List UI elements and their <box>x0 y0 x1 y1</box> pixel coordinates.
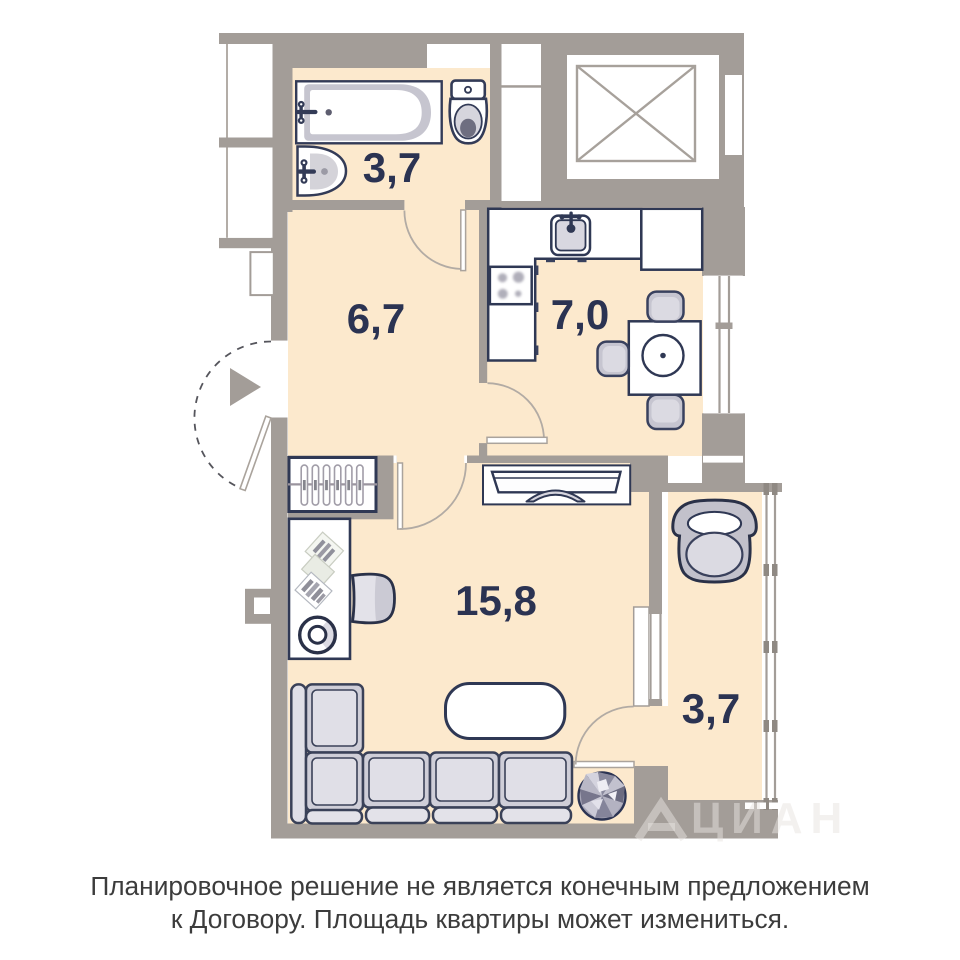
svg-text:7,0: 7,0 <box>551 291 609 338</box>
svg-text:Планировочное решение не являе: Планировочное решение не является конечн… <box>90 871 869 901</box>
svg-text:6,7: 6,7 <box>347 295 405 342</box>
svg-text:к Договору. Площадь квартиры м: к Договору. Площадь квартиры может измен… <box>171 904 789 934</box>
svg-text:3,7: 3,7 <box>363 144 421 191</box>
svg-text:3,7: 3,7 <box>682 685 740 732</box>
svg-text:ЦИАН: ЦИАН <box>691 794 850 843</box>
svg-text:15,8: 15,8 <box>455 577 537 624</box>
